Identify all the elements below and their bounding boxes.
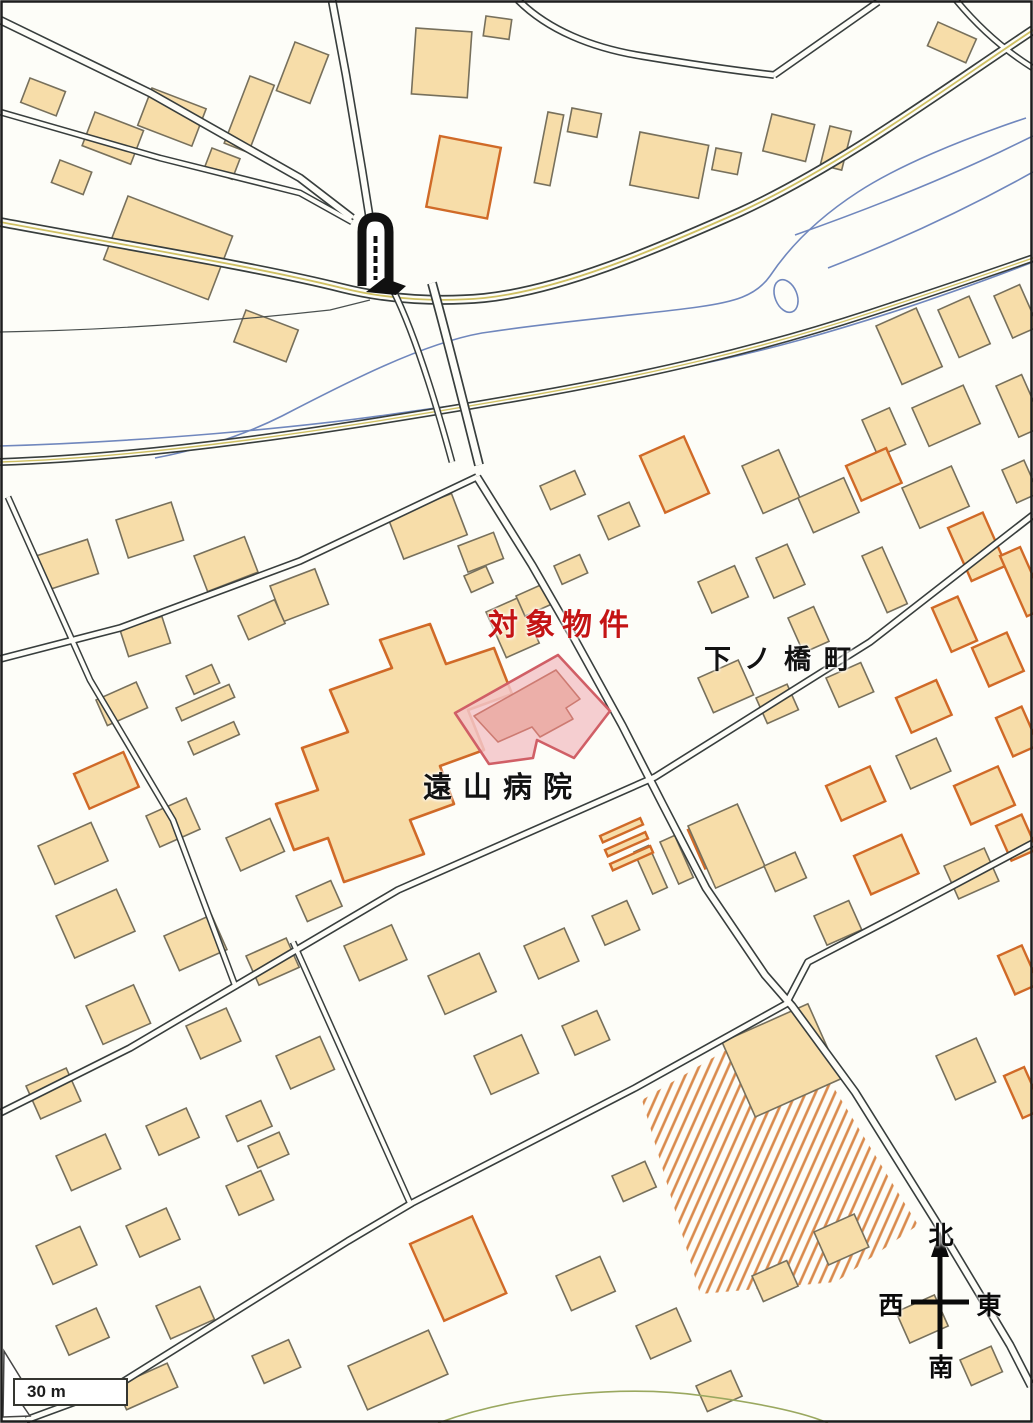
compass-east-label: 東 xyxy=(976,1286,1001,1322)
compass-west-label: 西 xyxy=(878,1286,903,1322)
compass-south-label: 南 xyxy=(928,1348,953,1384)
map-image xyxy=(0,0,1033,1423)
subject-property-label: 対象物件 xyxy=(488,600,636,644)
scale-bar: 30 m xyxy=(13,1378,128,1406)
scale-bar-label: 30 m xyxy=(27,1382,66,1402)
compass-north-label: 北 xyxy=(928,1216,953,1252)
map-canvas: 対象物件 下ノ橋町 遠山病院 北 南 西 東 30 m xyxy=(0,0,1033,1423)
district-label: 下ノ橋町 xyxy=(704,638,864,677)
hospital-label: 遠山病院 xyxy=(423,764,583,806)
